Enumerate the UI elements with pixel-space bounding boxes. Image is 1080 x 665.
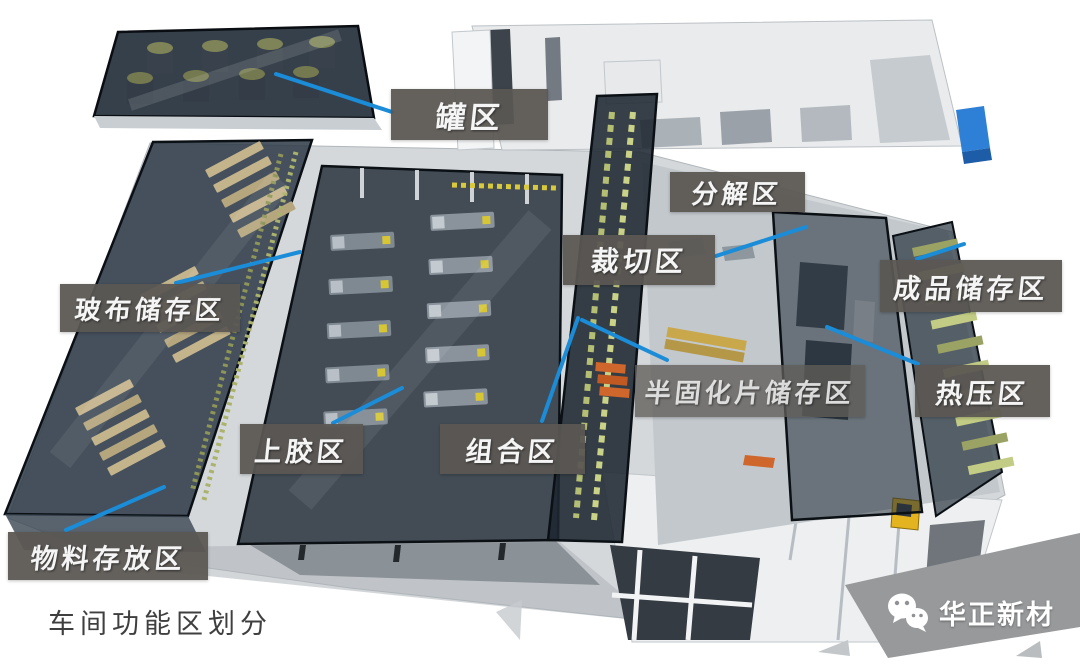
zone-label-gluing-area: 上胶区 [240, 424, 363, 474]
watermark: 华正新材 [885, 592, 1055, 632]
zone-label-prepreg-storage: 半固化片储存区 [635, 365, 865, 417]
zone-label-text: 物料存放区 [28, 537, 187, 576]
zone-label-text: 半固化片储存区 [643, 373, 857, 410]
zone-label-text: 组合区 [464, 430, 561, 469]
zone-label-assembly-area: 组合区 [440, 424, 585, 474]
zone-label-decomposition-area: 分解区 [670, 172, 805, 212]
zone-label-tank-area: 罐区 [391, 89, 548, 140]
zone-label-text: 分解区 [691, 174, 785, 211]
zone-label-text: 玻布储存区 [73, 290, 227, 327]
zone-label-material-storage: 物料存放区 [8, 532, 208, 580]
watermark-text: 华正新材 [939, 593, 1055, 632]
zone-label-text: 热压区 [934, 372, 1031, 411]
zone-tank-area-highlight [94, 26, 382, 130]
zone-label-text: 成品储存区 [891, 267, 1050, 306]
zone-label-text: 罐区 [433, 93, 506, 137]
wechat-icon [885, 592, 931, 632]
diagram-caption: 车间功能区划分 [48, 602, 272, 641]
blue-machine [956, 106, 992, 164]
zone-label-hot-press: 热压区 [915, 365, 1050, 417]
zone-label-glass-cloth-storage: 玻布储存区 [60, 284, 240, 332]
zone-label-text: 上胶区 [253, 430, 350, 469]
zone-label-text: 裁切区 [589, 240, 689, 280]
zone-label-cutting-area: 裁切区 [563, 235, 715, 285]
factory-diagram: 罐区 分解区 裁切区 玻布储存区 成品储存区 半固化片储存区 热压区 上胶区 组… [0, 0, 1080, 665]
zone-label-finished-product-storage: 成品储存区 [880, 260, 1062, 312]
